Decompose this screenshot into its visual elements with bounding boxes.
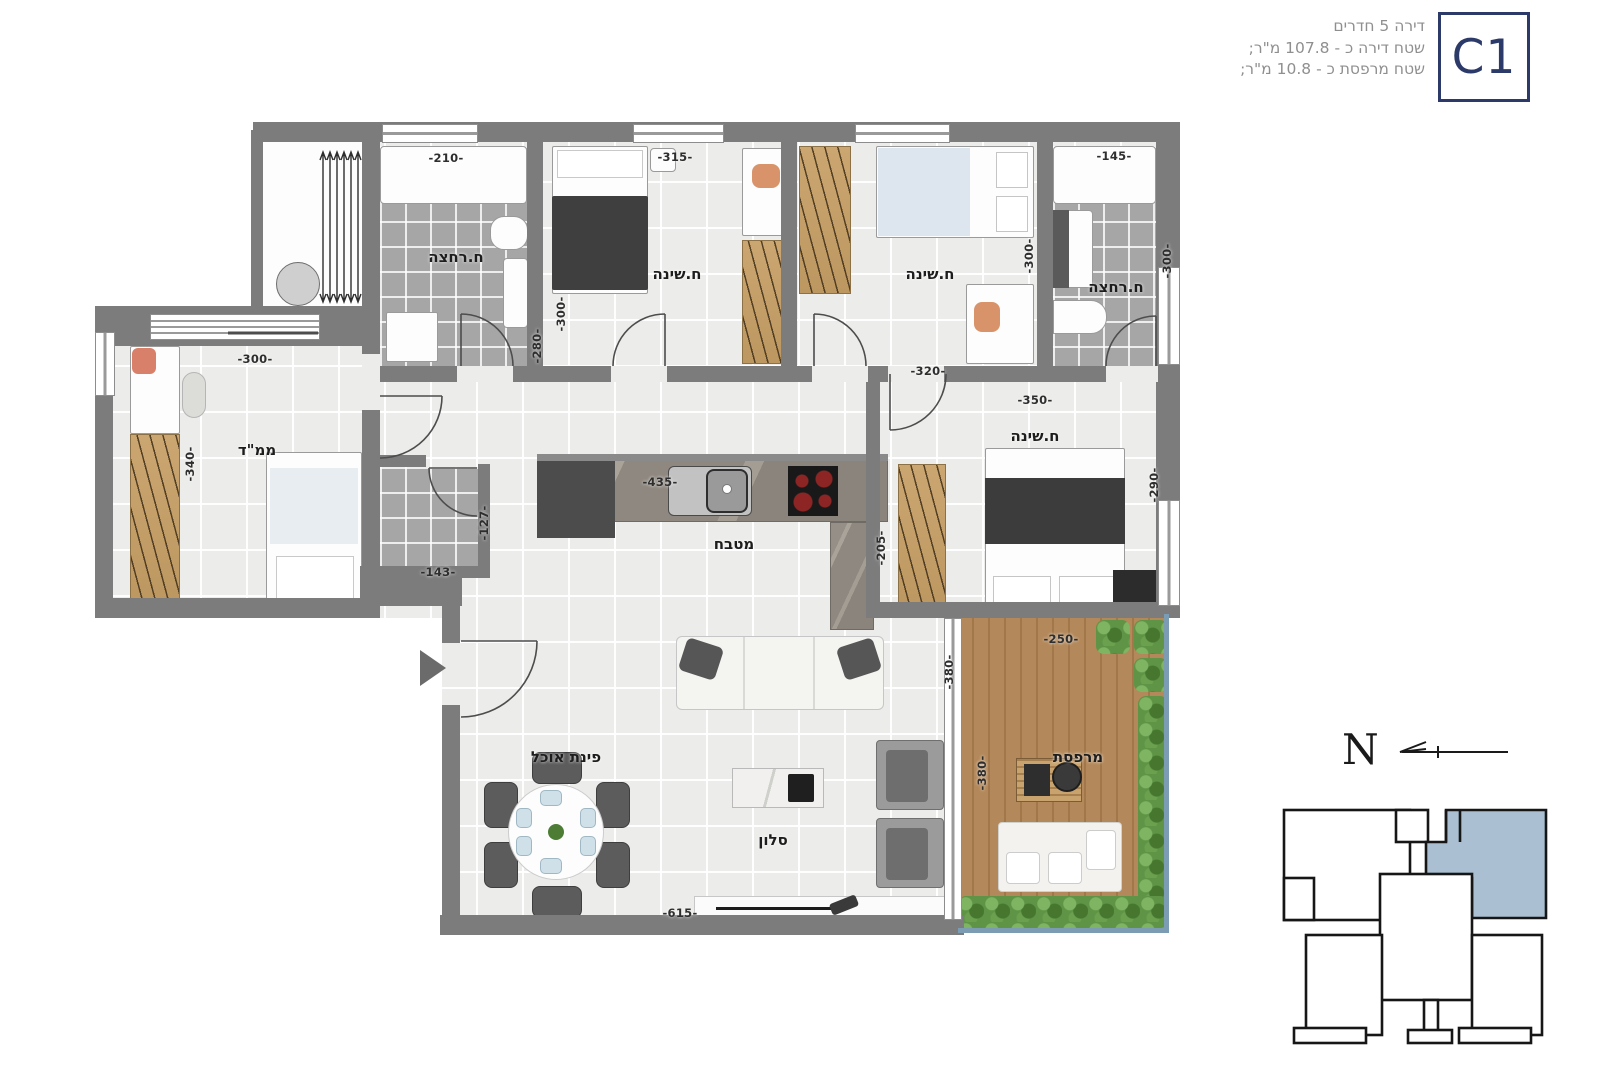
- wc-floor: [380, 467, 478, 566]
- stairwell-wall-left: [251, 130, 263, 312]
- planter-bush: [1134, 658, 1168, 692]
- dim-mamad-height: -340-: [183, 446, 197, 481]
- outdoor-round-table: [1052, 762, 1082, 792]
- keyplan-block: [1408, 1030, 1452, 1043]
- dim-living-height: -380-: [942, 654, 956, 689]
- north-arrow: N: [1320, 716, 1530, 778]
- bed-pillows: [996, 196, 1028, 232]
- keyplan-core: [1380, 874, 1472, 1000]
- bed-blanket-light: [270, 468, 358, 544]
- dim-balcony-height: -380-: [975, 755, 989, 790]
- dim-bed3-height: -290-: [1147, 467, 1161, 502]
- armchair-cushion: [886, 750, 928, 802]
- mamad-blast-window: [150, 314, 320, 340]
- room-label-dining: פינת אוכל: [531, 748, 601, 766]
- room-label-bed2: ח.שינה: [906, 265, 955, 283]
- partition-bed1-bed2: [781, 142, 797, 366]
- dim-balcony-width: -250-: [1043, 632, 1078, 646]
- keyplan-block: [1284, 810, 1410, 920]
- keyplan-block: [1306, 935, 1382, 1035]
- armchair-round: [182, 372, 206, 418]
- dim-bed3-width: -350-: [1017, 393, 1052, 407]
- dim-kitchen-width: -435-: [642, 475, 677, 489]
- desk-chair: [132, 348, 156, 374]
- window: [382, 124, 478, 143]
- dim-living-width: -615-: [662, 906, 697, 920]
- place-setting: [580, 808, 596, 828]
- soundbar: [716, 907, 838, 910]
- faucet: [722, 484, 732, 494]
- room-label-bed3: ח.שינה: [1011, 427, 1060, 445]
- vanity-cabinet-dark: [1053, 210, 1069, 288]
- dim-bath1-width: -210-: [428, 151, 463, 165]
- kitchen-half-wall: [537, 454, 888, 461]
- room-label-kitchen: מטבח: [714, 535, 755, 553]
- north-letter: N: [1342, 725, 1379, 774]
- refrigerator-cabinet: [537, 460, 615, 538]
- keyplan-block: [1472, 935, 1542, 1035]
- elevator-circle: [276, 262, 320, 306]
- dim-wc-height: -127-: [477, 505, 491, 540]
- floorplan-page: דירה 5 חדרים שטח דירה כ - 107.8 מ"ר; שטח…: [0, 0, 1600, 1067]
- wc-wall-left: [368, 464, 380, 578]
- room-label-bed1: ח.שינה: [653, 265, 702, 283]
- bath1-door-opening: [457, 366, 513, 382]
- place-setting: [540, 858, 562, 874]
- planter-bush: [1134, 620, 1168, 654]
- title-block: דירה 5 חדרים שטח דירה כ - 107.8 מ"ר; שטח…: [1240, 16, 1425, 81]
- window: [855, 124, 950, 143]
- living-wall-bottom: [440, 915, 964, 935]
- keyplan-block: [1294, 1028, 1366, 1043]
- dim-bed2-width: -320-: [910, 364, 945, 378]
- room-label-mamad: ממ"ד: [238, 441, 276, 459]
- outdoor-cushion: [1048, 852, 1082, 884]
- toilet: [1053, 300, 1107, 334]
- dim-bed1-width: -315-: [657, 150, 692, 164]
- dim-bath2-height: -300-: [1160, 243, 1174, 278]
- bed-blanket-light: [878, 148, 970, 236]
- title-line-rooms: דירה 5 חדרים: [1240, 16, 1425, 38]
- toilet: [490, 216, 528, 250]
- living-wall-left-lower: [442, 705, 460, 935]
- master-wall-bottom: [866, 602, 1180, 618]
- window: [1158, 267, 1180, 365]
- bed-pillows: [557, 150, 643, 178]
- dim-kitchen-height: -205-: [874, 530, 888, 565]
- armchair-cushion: [886, 828, 928, 880]
- dim-mamad-width: -300-: [237, 352, 272, 366]
- outdoor-cushion: [1006, 852, 1040, 884]
- cooktop: [788, 466, 838, 516]
- mamad-door-opening: [362, 354, 380, 410]
- title-line-balcony-area: שטח מרפסת כ - 10.8 מ"ר;: [1240, 59, 1425, 81]
- keyplan-wall-line: [1446, 810, 1460, 842]
- bed1-door-opening: [611, 366, 667, 382]
- coffee-table-decor: [788, 774, 814, 802]
- dim-bath2-width: -145-: [1096, 149, 1131, 163]
- dim-wc-width: -143-: [420, 565, 455, 579]
- table-plant: [548, 824, 564, 840]
- window: [633, 124, 724, 143]
- place-setting: [540, 790, 562, 806]
- balcony-railing-right: [1164, 614, 1169, 932]
- place-setting: [516, 808, 532, 828]
- place-setting: [580, 836, 596, 856]
- room-label-bath2: ח.רחצה: [1088, 278, 1143, 296]
- room-label-living: סלון: [758, 831, 788, 849]
- balcony-railing-bottom: [958, 928, 1169, 933]
- wardrobe: [799, 146, 851, 294]
- keyplan-block: [1396, 810, 1428, 842]
- keyplan-block: [1284, 878, 1314, 920]
- room-label-bath1: ח.רחצה: [428, 248, 483, 266]
- bed-blanket-dark: [552, 196, 648, 290]
- desk-chair: [974, 302, 1000, 332]
- master-wall-left: [866, 382, 880, 618]
- building-key-plan: [1256, 790, 1548, 1046]
- unit-code-box: C1: [1438, 12, 1530, 102]
- dim-bed1-height: -300-: [554, 296, 568, 331]
- wc-wall-top: [368, 455, 426, 467]
- partition-bed2-bath2: [1037, 142, 1053, 366]
- sink-vanity: [503, 258, 528, 328]
- north-arrow-head: [1400, 742, 1426, 752]
- mamad-wall-bottom: [95, 598, 380, 618]
- dining-chair: [596, 842, 630, 888]
- keyplan-unit-highlight: [1426, 810, 1546, 918]
- keyplan-block: [1424, 1000, 1438, 1032]
- outside-area-topleft: [95, 118, 253, 308]
- wardrobe: [898, 464, 946, 612]
- outdoor-tray: [1024, 764, 1050, 796]
- room-label-balcony: מרפסת: [1053, 748, 1103, 766]
- hedge-bottom: [958, 896, 1168, 928]
- bath2-door-opening: [1106, 366, 1158, 382]
- dim-bed2-height: -300-: [1022, 238, 1036, 273]
- dim-bath1-height: -280-: [530, 328, 544, 363]
- outside-area-bottomleft: [95, 618, 442, 935]
- wardrobe: [130, 434, 180, 604]
- window: [1158, 500, 1180, 606]
- desk-chair: [752, 164, 780, 188]
- planter-bush: [1096, 620, 1130, 654]
- keyplan-block: [1459, 1028, 1531, 1043]
- shower-tray: [386, 312, 438, 362]
- dining-chair: [532, 886, 582, 918]
- outdoor-cushion: [1086, 830, 1116, 870]
- bed-pillows: [996, 152, 1028, 188]
- bed2-door-opening: [812, 366, 868, 382]
- place-setting: [516, 836, 532, 856]
- bed-blanket-dark: [985, 478, 1125, 544]
- bed-pillows: [276, 556, 354, 604]
- window: [95, 332, 115, 396]
- title-line-apartment-area: שטח דירה כ - 107.8 מ"ר;: [1240, 38, 1425, 60]
- unit-code: C1: [1452, 30, 1517, 85]
